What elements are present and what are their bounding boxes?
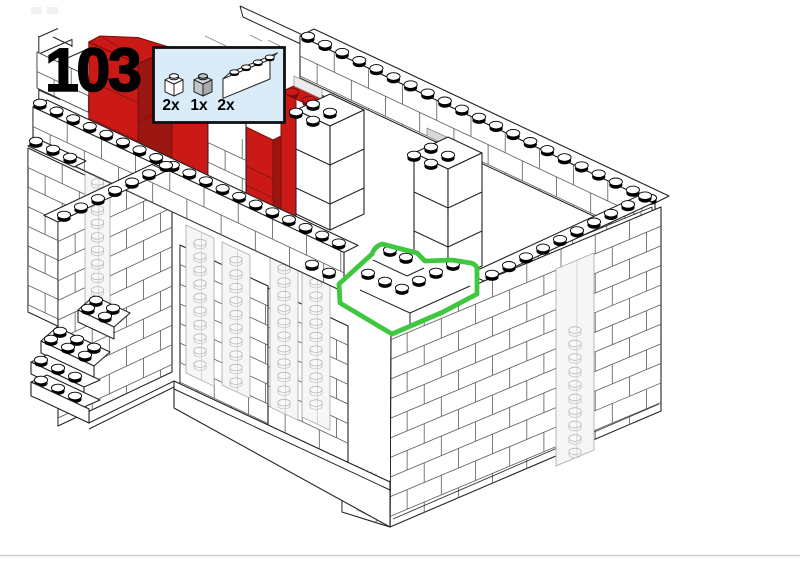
svg-text:2x: 2x bbox=[162, 97, 180, 114]
svg-text:2x: 2x bbox=[217, 97, 235, 114]
svg-text:1x: 1x bbox=[190, 97, 208, 114]
svg-text:103: 103 bbox=[45, 36, 140, 104]
